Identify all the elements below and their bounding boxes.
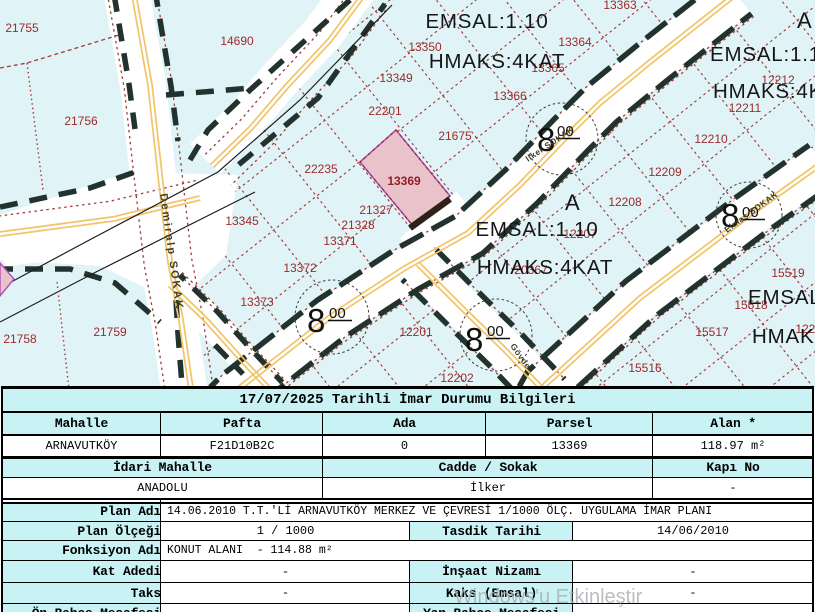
svg-text:HMAKS:4K: HMAKS:4K [713,80,815,103]
svg-text:HMAKS:4KAT: HMAKS:4KAT [429,50,565,73]
svg-text:13373: 13373 [240,295,274,309]
svg-text:EMSAL:1.10: EMSAL:1.10 [475,218,598,241]
svg-text:13366: 13366 [493,89,527,103]
svg-text:21675: 21675 [438,129,472,143]
svg-text:13364: 13364 [558,35,592,49]
svg-text:12202: 12202 [440,371,474,385]
svg-text:12211: 12211 [729,101,762,115]
svg-text:15519: 15519 [771,266,805,280]
svg-text:00: 00 [329,305,346,322]
svg-text:15517: 15517 [695,325,729,339]
svg-text:12209: 12209 [648,165,682,179]
svg-text:A: A [565,190,580,215]
svg-text:12201: 12201 [399,325,433,339]
svg-text:21756: 21756 [64,114,98,128]
svg-text:21759: 21759 [93,325,127,339]
svg-text:HMAKS:4KAT: HMAKS:4KAT [477,256,613,279]
svg-text:A: A [797,8,812,33]
svg-text:22201: 22201 [368,104,402,118]
svg-text:00: 00 [487,323,504,340]
svg-text:8: 8 [307,302,325,339]
svg-text:HMAKS: HMAKS [752,325,815,348]
svg-text:21755: 21755 [5,21,39,35]
svg-text:22235: 22235 [304,162,338,176]
svg-text:13369: 13369 [387,174,421,188]
svg-text:13349: 13349 [379,71,413,85]
svg-text:EMSAL:1.1: EMSAL:1.1 [710,43,815,66]
svg-text:15516: 15516 [628,361,662,375]
svg-text:21758: 21758 [3,332,37,346]
svg-text:13345: 13345 [225,214,259,228]
svg-text:14690: 14690 [220,34,254,48]
svg-text:12210: 12210 [694,132,728,146]
svg-text:13371: 13371 [323,234,357,248]
svg-text:8: 8 [465,321,483,358]
svg-text:13372: 13372 [283,261,317,275]
svg-text:EMSAL: EMSAL [748,286,815,309]
svg-text:21327: 21327 [359,203,393,217]
svg-text:EMSAL:1.10: EMSAL:1.10 [425,10,548,33]
svg-text:21328: 21328 [341,218,375,232]
svg-text:12208: 12208 [608,195,642,209]
svg-text:13363: 13363 [603,0,637,12]
